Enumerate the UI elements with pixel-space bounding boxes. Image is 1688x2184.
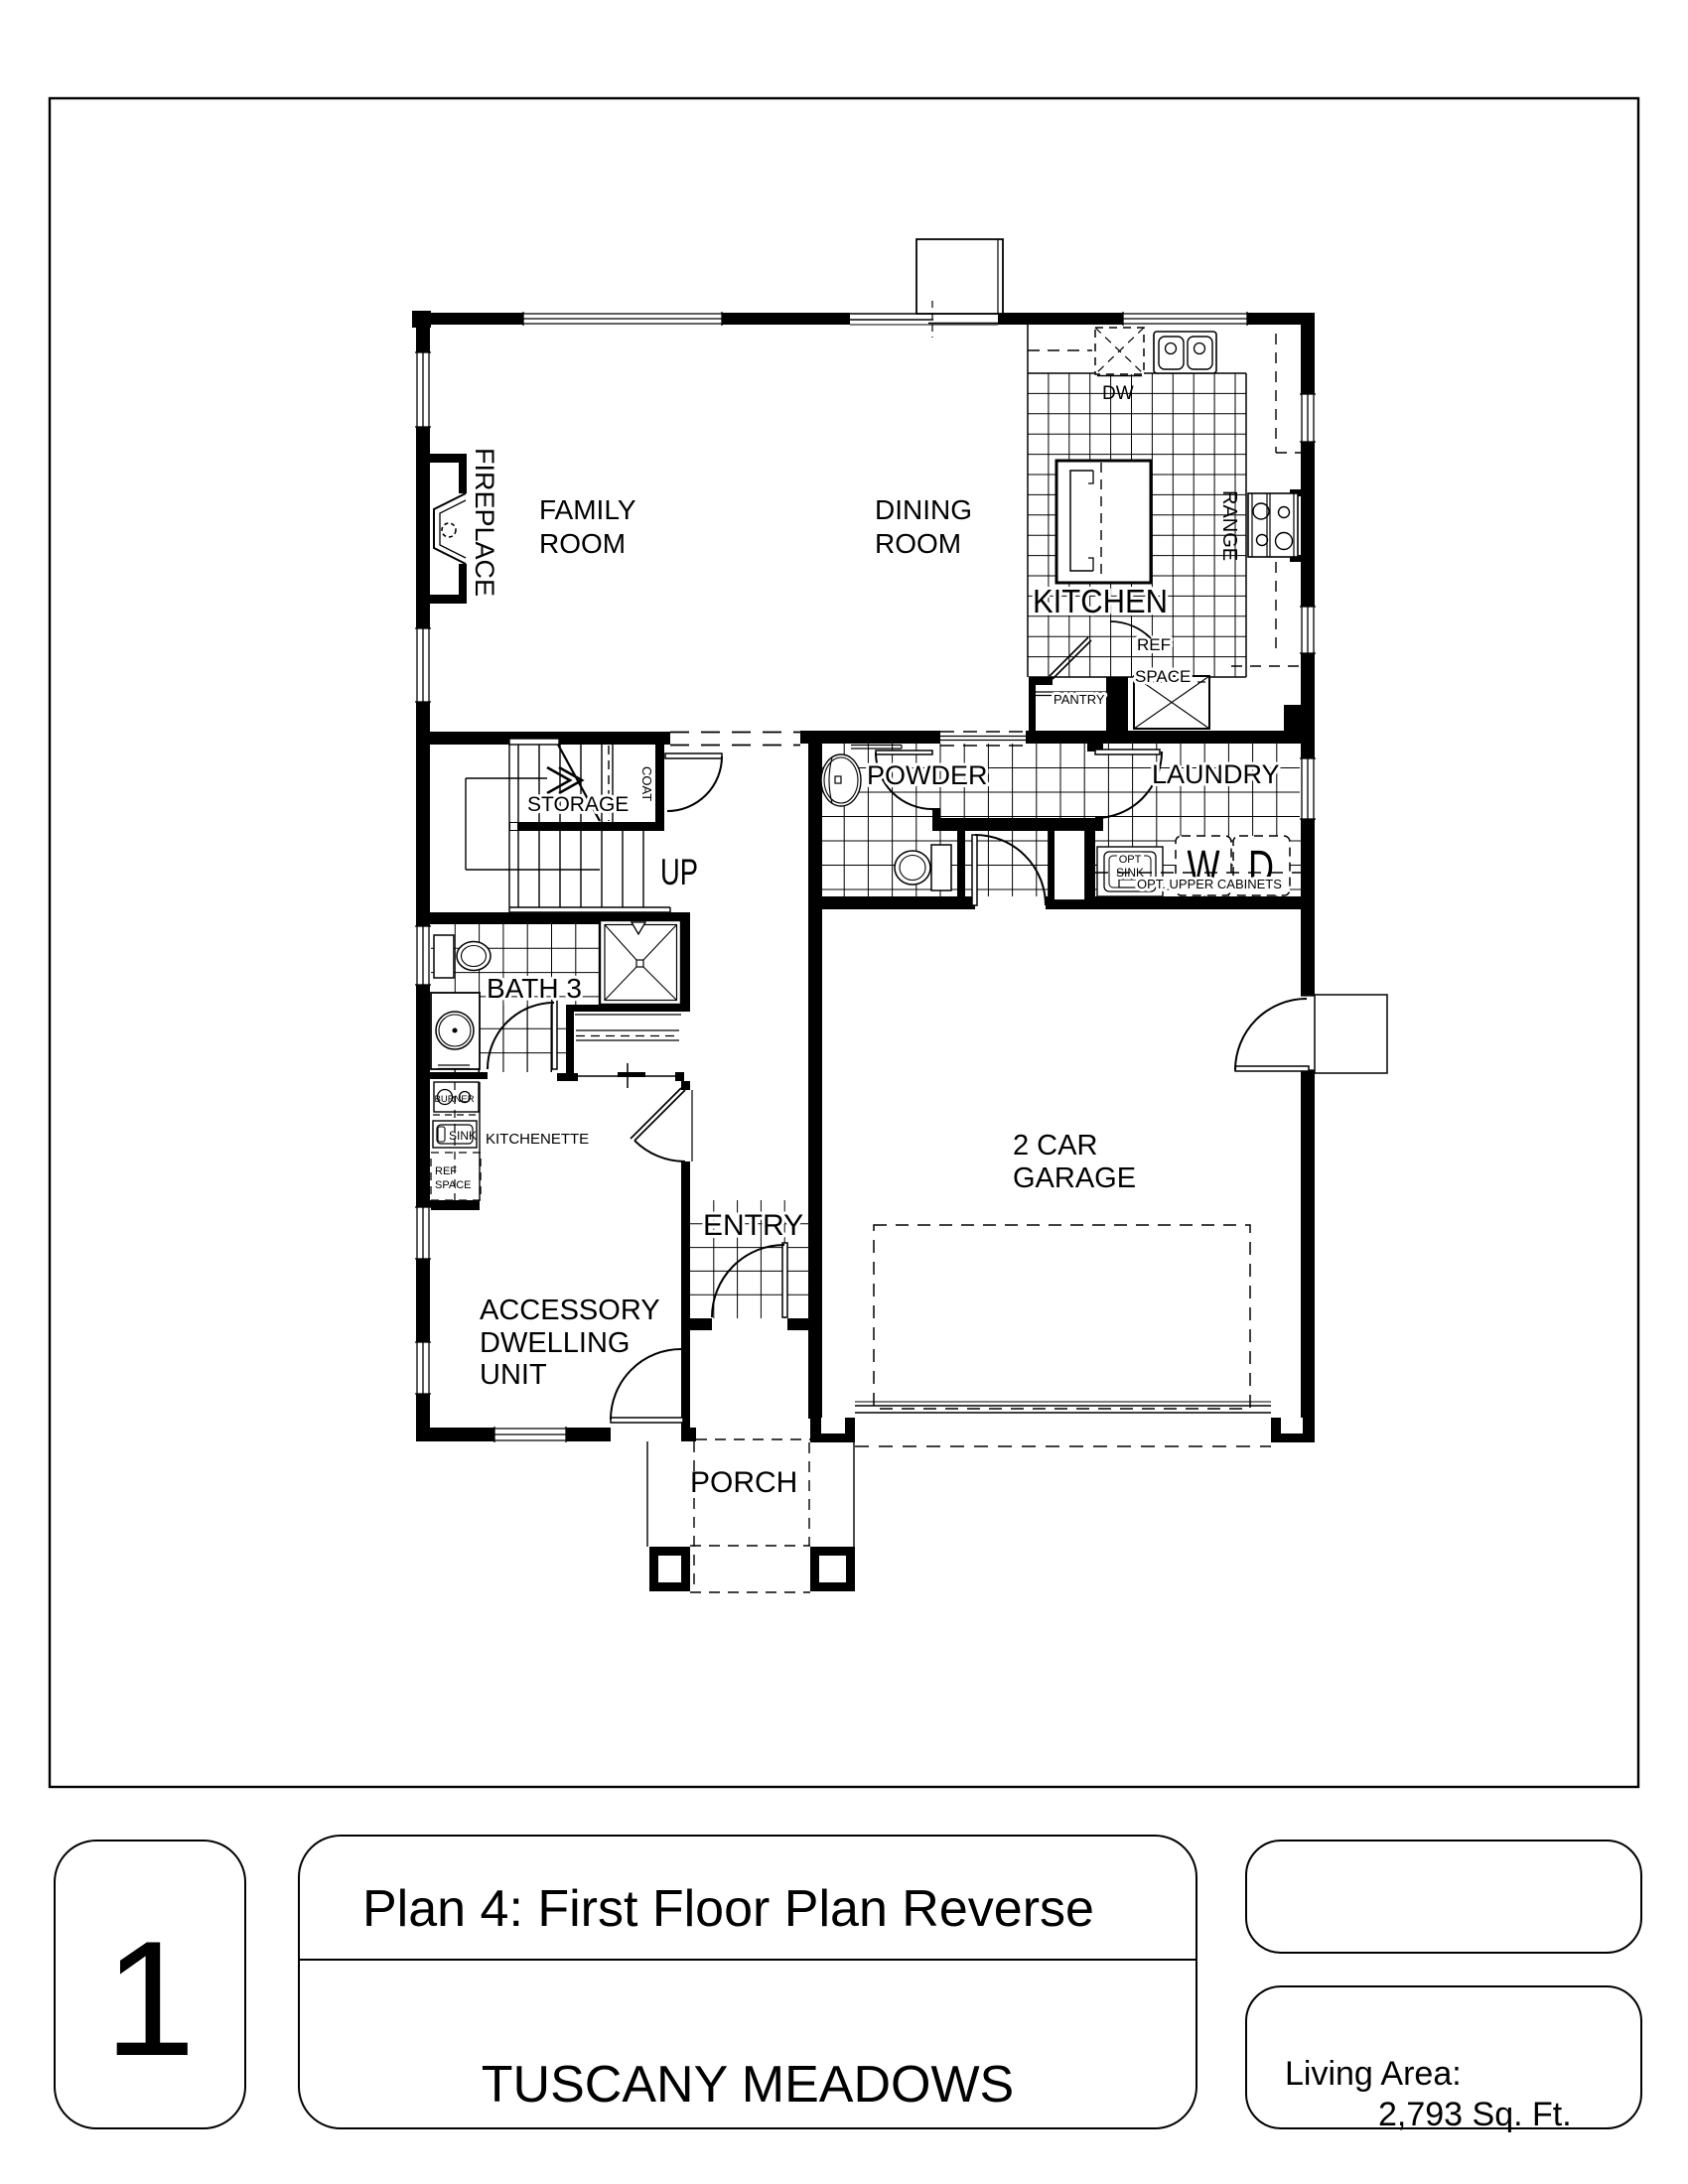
svg-text:RANGE: RANGE [1218,490,1240,561]
svg-text:ACCESSORY: ACCESSORY [480,1295,660,1326]
svg-text:Living Area:: Living Area: [1285,2055,1462,2093]
svg-text:KITCHEN: KITCHEN [1033,583,1168,619]
svg-text:FIREPLACE: FIREPLACE [470,448,499,597]
svg-text:POWDER: POWDER [867,760,988,790]
svg-text:ENTRY: ENTRY [703,1209,803,1242]
svg-text:SINK: SINK [449,1129,477,1143]
svg-text:GARAGE: GARAGE [1013,1162,1136,1194]
svg-text:ROOM: ROOM [875,528,961,559]
svg-text:OPT. UPPER CABINETS: OPT. UPPER CABINETS [1137,877,1282,891]
svg-text:Plan 4: First Floor Plan Rever: Plan 4: First Floor Plan Reverse [362,1880,1094,1938]
svg-text:SPACE: SPACE [435,1179,471,1191]
svg-text:PORCH: PORCH [690,1466,797,1499]
svg-text:2 CAR: 2 CAR [1013,1130,1097,1161]
svg-text:DWELLING: DWELLING [480,1327,630,1359]
svg-text:UNIT: UNIT [480,1359,547,1391]
svg-text:COAT: COAT [639,766,654,801]
svg-text:FAMILY: FAMILY [539,494,636,525]
svg-text:LAUNDRY: LAUNDRY [1152,759,1280,789]
svg-text:REF: REF [435,1165,457,1177]
svg-text:KITCHENETTE: KITCHENETTE [486,1131,589,1148]
svg-text:STORAGE: STORAGE [527,793,629,816]
svg-text:1: 1 [104,1907,196,2090]
svg-text:2,793 Sq. Ft.: 2,793 Sq. Ft. [1378,2096,1572,2133]
svg-text:REF: REF [1137,635,1171,654]
svg-text:BATH 3: BATH 3 [487,973,582,1004]
svg-text:UP: UP [660,852,698,892]
svg-text:DINING: DINING [875,494,972,525]
svg-text:PANTRY: PANTRY [1054,692,1105,707]
svg-text:DW: DW [1102,383,1134,404]
svg-text:SPACE: SPACE [1135,667,1191,686]
svg-text:ROOM: ROOM [539,528,626,559]
svg-text:TUSCANY MEADOWS: TUSCANY MEADOWS [482,2056,1014,2114]
svg-text:OPT: OPT [1119,854,1142,866]
